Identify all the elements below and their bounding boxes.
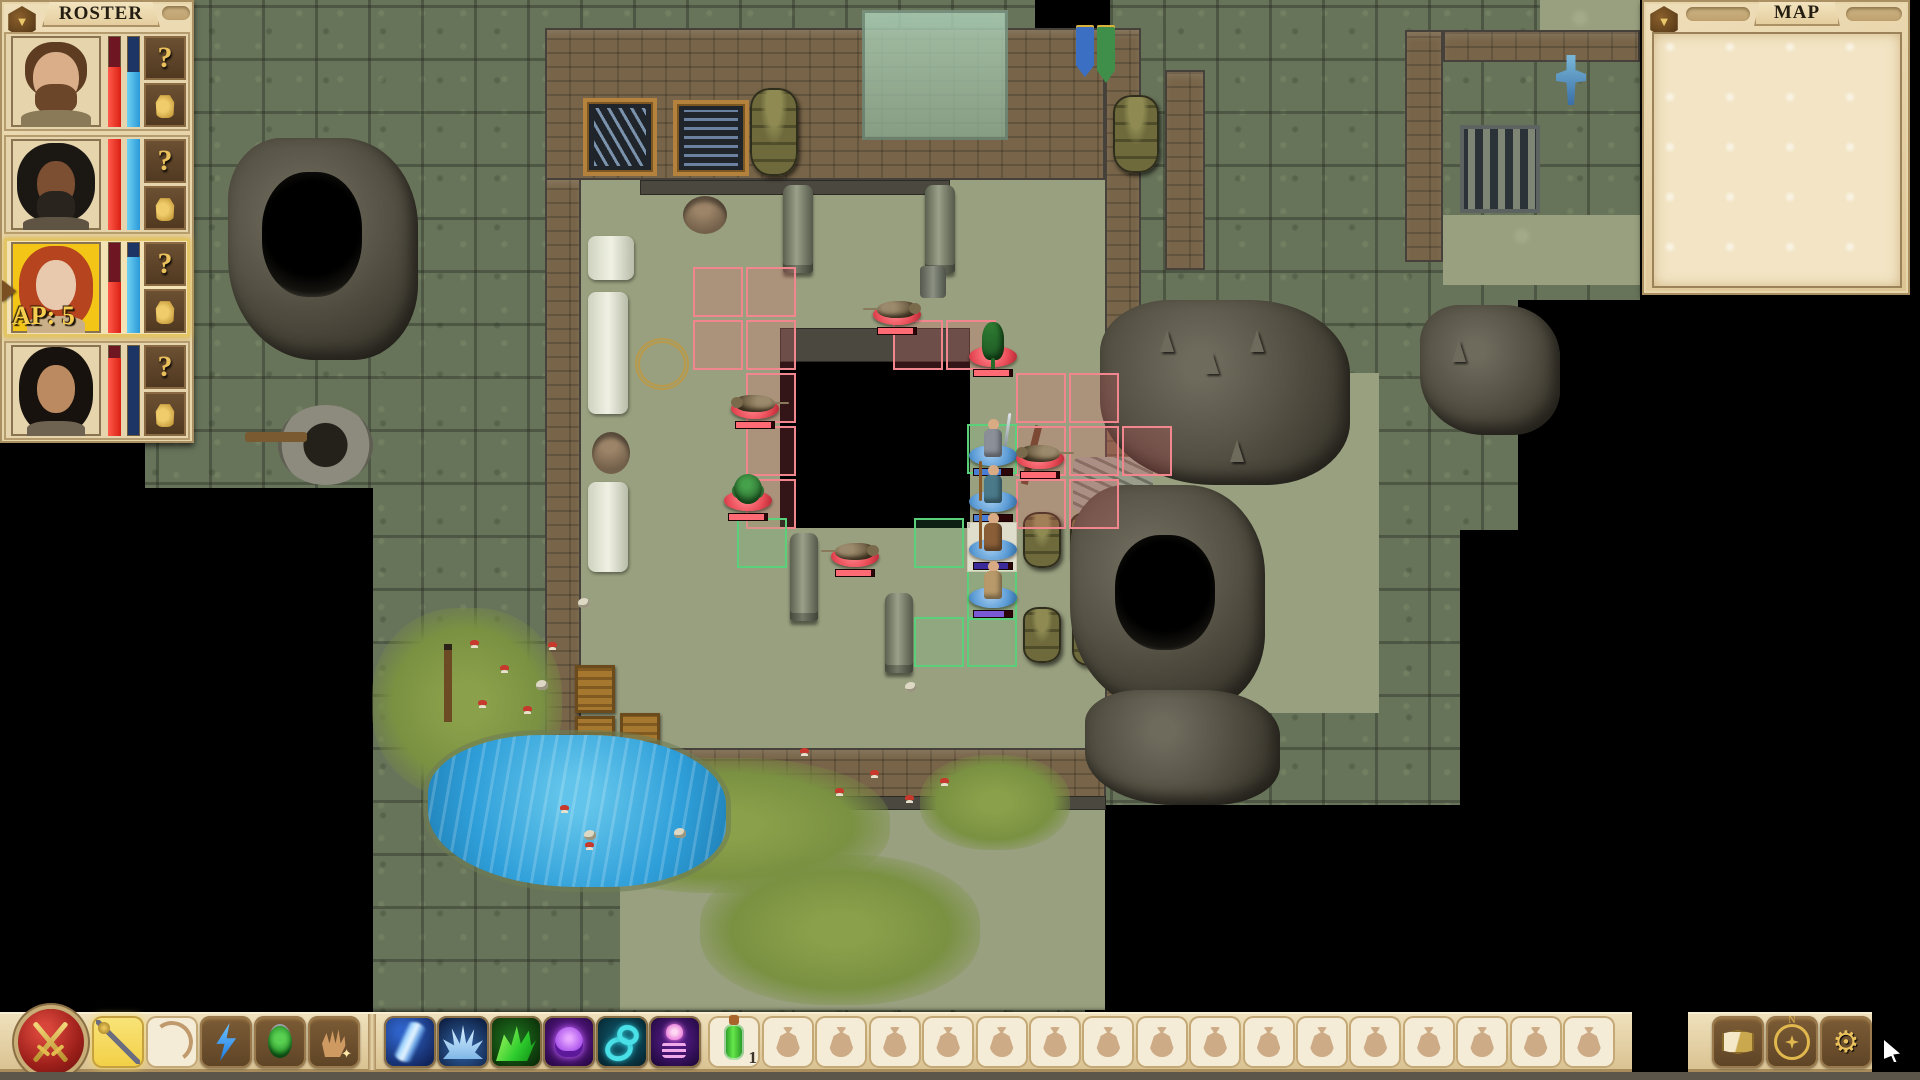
barrel[interactable] bbox=[1023, 607, 1061, 663]
move-range-tile[interactable] bbox=[737, 518, 787, 568]
collapse-icon: ▼ bbox=[1658, 14, 1671, 30]
sword-icon bbox=[1004, 413, 1012, 447]
crate[interactable] bbox=[575, 665, 615, 713]
sparkle-icon: ✦ bbox=[341, 1046, 352, 1062]
mushroom bbox=[585, 842, 594, 847]
enemy-hp-bar bbox=[878, 328, 916, 334]
acid-spray-icon bbox=[496, 1023, 536, 1061]
bag-icon bbox=[1523, 1027, 1549, 1057]
bag-icon bbox=[1202, 1027, 1228, 1057]
attack-range-tile[interactable] bbox=[1069, 479, 1119, 529]
bag-icon bbox=[1469, 1027, 1495, 1057]
backpack-icon bbox=[154, 401, 176, 427]
bag-icon bbox=[828, 1027, 854, 1057]
hp-fill bbox=[878, 328, 913, 334]
inventory-button[interactable] bbox=[144, 186, 186, 230]
bag-icon bbox=[1149, 1027, 1175, 1057]
attack-range-tile[interactable] bbox=[1122, 426, 1172, 476]
hp-fill bbox=[108, 139, 121, 230]
active-character-marker bbox=[2, 280, 27, 302]
spell-slot-chain-lightning[interactable] bbox=[384, 1016, 436, 1068]
grass bbox=[920, 755, 1070, 850]
bag-slot[interactable] bbox=[1029, 1016, 1081, 1068]
enemy-body bbox=[1020, 445, 1060, 462]
ne-floor bbox=[1443, 215, 1640, 285]
hp-bar bbox=[108, 345, 121, 436]
mushroom bbox=[470, 640, 479, 645]
staff-icon bbox=[979, 509, 982, 549]
party-hp-bar bbox=[974, 611, 1012, 617]
system-bar: N⚙ bbox=[1688, 1012, 1872, 1072]
bag-slot[interactable] bbox=[1563, 1016, 1615, 1068]
mushroom bbox=[835, 788, 844, 793]
backpack-icon bbox=[154, 92, 176, 118]
sp-bar bbox=[127, 345, 140, 436]
compass-icon: N bbox=[1774, 1024, 1810, 1060]
weapon-slot-beetle-charm[interactable] bbox=[254, 1016, 306, 1068]
panel-ridge bbox=[1846, 7, 1902, 21]
well[interactable] bbox=[278, 405, 373, 485]
weapon-slot-mage-hand[interactable]: ✦ bbox=[308, 1016, 360, 1068]
party-member-priest[interactable] bbox=[965, 551, 1021, 617]
bottom-edge bbox=[0, 1072, 1920, 1080]
hp-bar bbox=[108, 36, 121, 127]
mushroom bbox=[523, 706, 532, 711]
doorway[interactable] bbox=[862, 10, 1008, 140]
sp-fill bbox=[127, 139, 140, 230]
weapon-slot-bow[interactable] bbox=[146, 1016, 198, 1068]
column bbox=[925, 185, 955, 273]
bag-icon bbox=[1042, 1027, 1068, 1057]
bag-icon bbox=[1416, 1027, 1442, 1057]
info-button[interactable]: ? bbox=[144, 242, 186, 286]
bag-slot[interactable] bbox=[815, 1016, 867, 1068]
bag-slot[interactable] bbox=[1243, 1016, 1295, 1068]
bedroll bbox=[588, 236, 634, 280]
sp-fill bbox=[127, 72, 140, 127]
bag-slot[interactable] bbox=[1189, 1016, 1241, 1068]
bag-slot[interactable] bbox=[1456, 1016, 1508, 1068]
enemy-hp-bar bbox=[729, 514, 767, 520]
enemy-body bbox=[735, 395, 775, 412]
portrait-art bbox=[27, 421, 85, 436]
backpack-icon bbox=[154, 195, 176, 221]
attack-range-tile[interactable] bbox=[1069, 426, 1119, 476]
party-body bbox=[982, 465, 1004, 505]
move-range-tile[interactable] bbox=[914, 518, 964, 568]
stalagmite bbox=[1250, 330, 1264, 352]
weapon-slot-staff[interactable] bbox=[92, 1016, 144, 1068]
bag-slot[interactable] bbox=[922, 1016, 974, 1068]
cot bbox=[588, 482, 628, 572]
rack-weapons bbox=[684, 110, 738, 166]
weapon-slot-lightning-bolt[interactable] bbox=[200, 1016, 252, 1068]
cot bbox=[588, 292, 628, 414]
mushroom bbox=[548, 642, 557, 647]
bag-slot[interactable] bbox=[869, 1016, 921, 1068]
darkness bbox=[1085, 805, 1640, 1012]
info-button[interactable]: ? bbox=[144, 139, 186, 183]
item-slot-green-potion[interactable]: 1 bbox=[708, 1016, 760, 1068]
bag-slot[interactable] bbox=[1349, 1016, 1401, 1068]
roster-panel: ▼ ROSTER ???AP: 5? bbox=[0, 0, 194, 443]
enemy-body bbox=[982, 322, 1004, 360]
journal-button[interactable] bbox=[1712, 1016, 1764, 1068]
roster-title: ROSTER bbox=[59, 3, 143, 25]
basket[interactable] bbox=[683, 196, 727, 234]
enemy-beetle[interactable] bbox=[720, 454, 776, 520]
mushroom bbox=[560, 805, 569, 810]
panel-ridge bbox=[1686, 7, 1750, 21]
stalagmite bbox=[1205, 352, 1219, 374]
summon-skeleton-icon bbox=[660, 1024, 690, 1060]
rock-hole bbox=[262, 172, 362, 297]
hp-fill bbox=[108, 358, 121, 436]
move-range-tile[interactable] bbox=[967, 617, 1017, 667]
panel-ridge bbox=[162, 6, 190, 20]
hp-fill bbox=[836, 570, 871, 576]
well-plank bbox=[245, 432, 307, 442]
party-body bbox=[982, 419, 1004, 459]
spell-slot-ice-crystals[interactable] bbox=[437, 1016, 489, 1068]
bag-icon bbox=[882, 1027, 908, 1057]
hp-fill bbox=[108, 67, 121, 127]
sp-bar bbox=[127, 36, 140, 127]
column bbox=[885, 593, 913, 673]
enemy-hp-bar bbox=[836, 570, 874, 576]
green-potion-icon bbox=[724, 1024, 744, 1060]
bag-slot[interactable] bbox=[976, 1016, 1028, 1068]
portrait-art bbox=[37, 365, 75, 413]
skull bbox=[905, 682, 917, 692]
enemy-body bbox=[734, 474, 762, 504]
enemy-body bbox=[877, 301, 917, 318]
game-screen: ▼ ROSTER ???AP: 5? ▼ MAP ✦ 1 N⚙ bbox=[0, 0, 1920, 1080]
attack-range-tile[interactable] bbox=[693, 267, 743, 317]
attack-range-tile[interactable] bbox=[746, 267, 796, 317]
ap-indicator: AP: 5 bbox=[12, 301, 75, 331]
enemy-hp-bar bbox=[736, 422, 774, 428]
enemy-rat[interactable] bbox=[827, 510, 883, 576]
grass bbox=[700, 855, 980, 1005]
spell-slot-summon-skeleton[interactable] bbox=[649, 1016, 701, 1068]
portrait-c4[interactable] bbox=[11, 345, 101, 436]
clay-pot[interactable] bbox=[592, 432, 630, 474]
mushroom bbox=[478, 700, 487, 705]
ice-crystals-icon bbox=[443, 1025, 483, 1059]
character-card[interactable]: ? bbox=[4, 341, 190, 440]
staff-icon bbox=[979, 461, 982, 501]
combat-mode-button[interactable] bbox=[18, 1009, 84, 1075]
portrait-art bbox=[21, 110, 91, 127]
column bbox=[790, 533, 818, 621]
torch-pole bbox=[444, 650, 452, 722]
rack-weapons bbox=[594, 108, 646, 166]
gear-icon: ⚙ bbox=[1833, 1025, 1860, 1060]
bow-icon bbox=[148, 1018, 195, 1065]
journal-icon bbox=[1722, 1030, 1754, 1054]
skull bbox=[536, 680, 548, 690]
water-pool bbox=[428, 735, 726, 887]
bag-icon bbox=[1362, 1027, 1388, 1057]
rock-hole bbox=[1115, 535, 1215, 650]
enemy-hp-bar bbox=[974, 370, 1012, 376]
rocks bbox=[1085, 690, 1280, 805]
bag-slot[interactable] bbox=[1296, 1016, 1348, 1068]
bag-icon bbox=[1309, 1027, 1335, 1057]
darkness bbox=[145, 488, 373, 1012]
central-pit bbox=[780, 362, 970, 528]
character-card[interactable]: ? bbox=[4, 135, 190, 234]
bag-slot[interactable] bbox=[762, 1016, 814, 1068]
mushroom bbox=[905, 795, 914, 800]
barrel[interactable] bbox=[1113, 95, 1159, 173]
settings-button[interactable]: ⚙ bbox=[1820, 1016, 1872, 1068]
bag-slot[interactable] bbox=[1510, 1016, 1562, 1068]
staff-icon bbox=[96, 1020, 140, 1064]
inventory-button[interactable] bbox=[144, 83, 186, 127]
enemy-lizard[interactable] bbox=[965, 310, 1021, 376]
hp-bar bbox=[108, 242, 121, 333]
hp-fill bbox=[974, 611, 1004, 617]
beetle-charm-icon bbox=[268, 1026, 292, 1058]
sp-bar bbox=[127, 139, 140, 230]
compass-n: N bbox=[1788, 1015, 1795, 1026]
stalagmite bbox=[1452, 340, 1466, 362]
portcullis[interactable] bbox=[1460, 125, 1540, 213]
stalagmite bbox=[1160, 330, 1174, 352]
game-world[interactable] bbox=[0, 0, 1920, 1080]
bag-icon bbox=[1576, 1027, 1602, 1057]
lightning-bolt-icon bbox=[211, 1023, 241, 1061]
mushroom bbox=[800, 748, 809, 753]
mushroom bbox=[870, 770, 879, 775]
item-count: 1 bbox=[749, 1048, 758, 1068]
enemy-rat[interactable] bbox=[727, 362, 783, 428]
stalagmite bbox=[1230, 440, 1244, 462]
corridor-wall bbox=[1165, 70, 1205, 270]
bag-icon bbox=[1095, 1027, 1121, 1057]
bag-slot[interactable] bbox=[1136, 1016, 1188, 1068]
barrel[interactable] bbox=[750, 88, 798, 176]
map-title: MAP bbox=[1774, 2, 1820, 24]
bag-icon bbox=[989, 1027, 1015, 1057]
portrait-c1[interactable] bbox=[11, 36, 101, 127]
hp-bar bbox=[108, 139, 121, 230]
move-range-tile[interactable] bbox=[914, 617, 964, 667]
map-tab[interactable]: MAP bbox=[1754, 0, 1840, 26]
mushroom bbox=[500, 665, 509, 670]
bag-icon bbox=[775, 1027, 801, 1057]
spell-slot-acid-spray[interactable] bbox=[490, 1016, 542, 1068]
info-button[interactable]: ? bbox=[144, 36, 186, 80]
character-card[interactable]: ? bbox=[4, 32, 190, 131]
hp-fill bbox=[736, 422, 771, 428]
toolbar-divider bbox=[368, 1014, 376, 1070]
character-card[interactable]: ?AP: 5 bbox=[4, 238, 190, 337]
portrait-c2[interactable] bbox=[11, 139, 101, 230]
action-bar: ✦ 1 bbox=[0, 1012, 1632, 1072]
info-button[interactable]: ? bbox=[144, 345, 186, 389]
attack-range-tile[interactable] bbox=[1069, 373, 1119, 423]
spell-slot-shackles[interactable] bbox=[596, 1016, 648, 1068]
rope-coil[interactable] bbox=[635, 338, 689, 390]
sp-bar bbox=[127, 242, 140, 333]
party-body bbox=[982, 513, 1004, 553]
skull bbox=[584, 830, 596, 840]
spell-slot-curse-skull[interactable] bbox=[543, 1016, 595, 1068]
mushroom bbox=[940, 778, 949, 783]
sp-fill bbox=[127, 257, 140, 333]
compass-button[interactable]: N bbox=[1766, 1016, 1818, 1068]
minimap[interactable] bbox=[1652, 32, 1902, 288]
shackles-icon bbox=[605, 1025, 639, 1059]
roster-tab[interactable]: ROSTER bbox=[42, 0, 160, 27]
bag-icon bbox=[1256, 1027, 1282, 1057]
corridor-wall bbox=[1405, 30, 1443, 262]
chain-lightning-icon bbox=[392, 1022, 428, 1062]
bag-slot[interactable] bbox=[1403, 1016, 1455, 1068]
cave-wall bbox=[1420, 305, 1560, 435]
column bbox=[783, 185, 813, 273]
enemy-rat[interactable] bbox=[869, 268, 925, 334]
corridor-wall bbox=[1443, 30, 1640, 62]
backpack-icon bbox=[154, 298, 176, 324]
inventory-button[interactable] bbox=[144, 392, 186, 436]
inventory-button[interactable] bbox=[144, 289, 186, 333]
bag-slot[interactable] bbox=[1082, 1016, 1134, 1068]
attack-range-tile[interactable] bbox=[1016, 479, 1066, 529]
collapse-icon: ▼ bbox=[16, 14, 29, 30]
enemy-body bbox=[835, 543, 875, 560]
curse-skull-icon bbox=[555, 1027, 583, 1057]
hp-fill bbox=[974, 370, 1009, 376]
hp-fill bbox=[1021, 472, 1056, 478]
map-panel: ▼ MAP bbox=[1642, 0, 1910, 295]
enemy-hp-bar bbox=[1021, 472, 1059, 478]
hp-fill bbox=[729, 514, 764, 520]
skull bbox=[674, 828, 686, 838]
skull bbox=[578, 598, 590, 608]
bag-icon bbox=[935, 1027, 961, 1057]
darkness bbox=[1035, 0, 1110, 28]
party-body bbox=[982, 561, 1004, 601]
hp-fill bbox=[108, 282, 121, 333]
portrait-art bbox=[23, 217, 89, 230]
